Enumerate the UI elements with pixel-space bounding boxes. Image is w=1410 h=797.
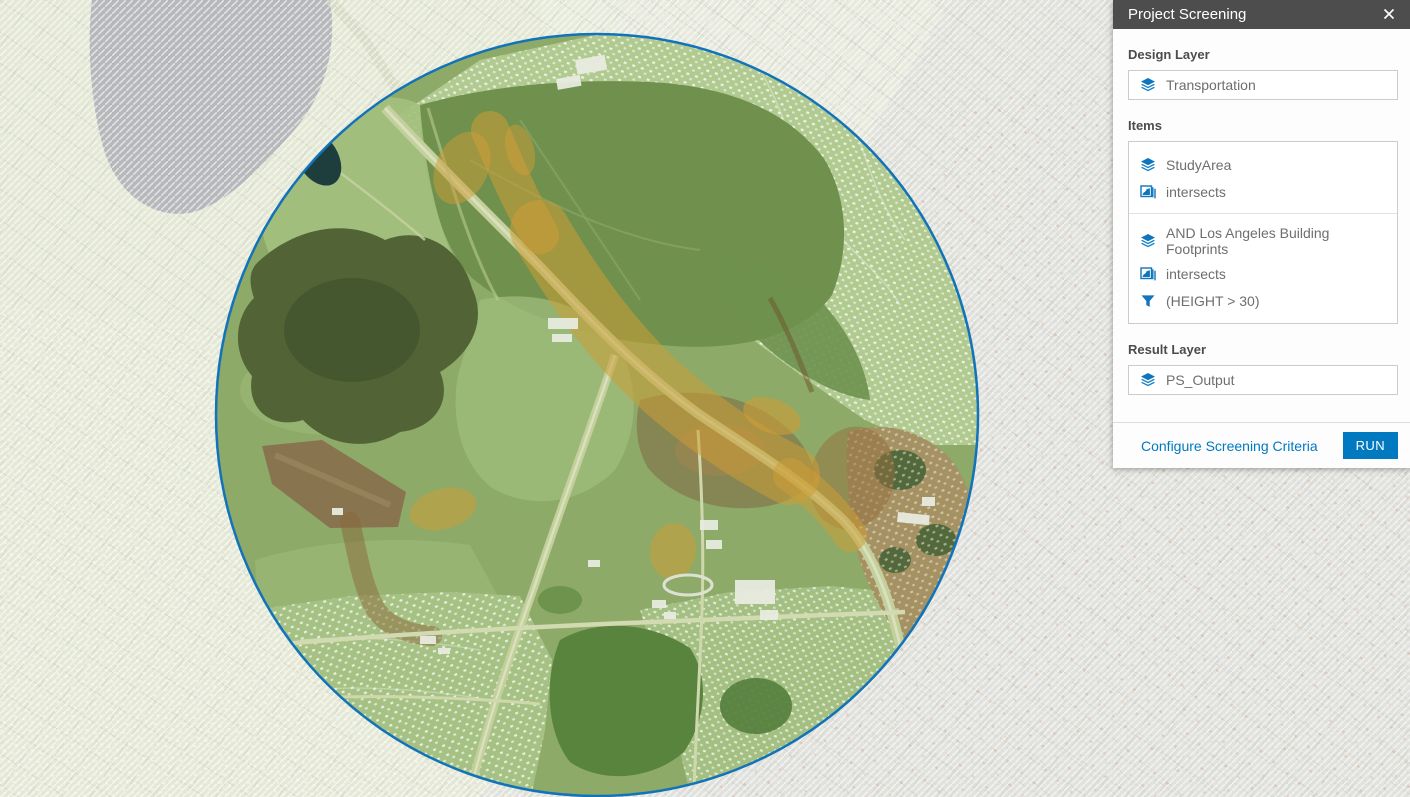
design-layer-select[interactable]: Transportation <box>1128 70 1398 100</box>
layers-icon <box>1140 77 1156 93</box>
layers-icon <box>1140 157 1156 173</box>
intersect-icon <box>1140 184 1156 200</box>
panel-footer: Configure Screening Criteria RUN <box>1113 422 1410 468</box>
item-layer-row[interactable]: AND Los Angeles Building Footprints <box>1129 222 1397 260</box>
item-layer-name: AND Los Angeles Building Footprints <box>1166 225 1386 257</box>
run-button[interactable]: RUN <box>1343 432 1398 459</box>
filter-icon <box>1140 293 1156 309</box>
design-layer-label: Design Layer <box>1128 47 1398 62</box>
items-label: Items <box>1128 118 1398 133</box>
item-layer-name: StudyArea <box>1166 157 1231 173</box>
item-relation-row[interactable]: intersects <box>1129 260 1397 287</box>
layers-icon <box>1140 372 1156 388</box>
result-layer-select[interactable]: PS_Output <box>1128 365 1398 395</box>
panel-header: Project Screening <box>1113 0 1410 29</box>
result-layer-value: PS_Output <box>1166 372 1235 388</box>
item-relation-row[interactable]: intersects <box>1129 178 1397 205</box>
items-box: StudyArea intersects <box>1128 141 1398 324</box>
close-button[interactable] <box>1380 5 1400 25</box>
item-filter-row[interactable]: (HEIGHT > 30) <box>1129 287 1397 314</box>
project-screening-panel: Project Screening Design Layer Transport… <box>1113 0 1410 468</box>
intersect-icon <box>1140 266 1156 282</box>
items-divider <box>1129 213 1397 214</box>
item-relation: intersects <box>1166 184 1226 200</box>
close-icon <box>1382 7 1398 23</box>
item-filter-expression: (HEIGHT > 30) <box>1166 293 1260 309</box>
configure-screening-criteria-link[interactable]: Configure Screening Criteria <box>1141 438 1318 454</box>
panel-body: Design Layer Transportation Items <box>1113 47 1410 395</box>
layers-icon <box>1140 233 1156 249</box>
panel-title: Project Screening <box>1128 6 1246 23</box>
design-layer-value: Transportation <box>1166 77 1256 93</box>
item-relation: intersects <box>1166 266 1226 282</box>
item-layer-row[interactable]: StudyArea <box>1129 151 1397 178</box>
result-layer-label: Result Layer <box>1128 342 1398 357</box>
